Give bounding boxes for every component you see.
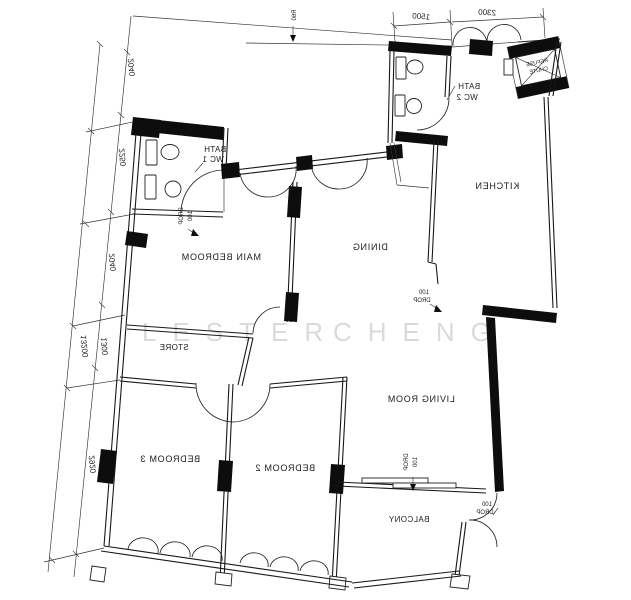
dim-left-seg1: 2040 — [126, 58, 137, 77]
floor-plan-page: LESTER CHENG 2040 2250 2040 1300 2920 13… — [0, 0, 631, 600]
top-dimension-lines: 1500 2300 — [391, 8, 546, 45]
bath2-label-line2: WC 2 — [456, 93, 478, 102]
dim-top-2300: 2300 — [477, 8, 496, 18]
room-label-bedroom3: BEDROOM 3 — [140, 454, 200, 464]
bathroom-1: BATH WC 1 DROP 100 — [132, 120, 228, 236]
bidet-base-1 — [145, 175, 156, 199]
room-label-bedroom2: BEDROOM 2 — [255, 463, 315, 473]
watermark-last-name: CHENG — [333, 317, 507, 347]
watermark: LESTER CHENG — [142, 317, 507, 347]
drop-word: DROP — [413, 298, 430, 304]
sliding-door-panel-1 — [362, 478, 428, 483]
radius-note: R60 — [133, 9, 452, 46]
drop-value: 100 — [481, 502, 492, 508]
bidet-bowl-1 — [165, 181, 181, 197]
bath1-label-line2: WC 1 — [202, 155, 224, 164]
bidet-base-2 — [395, 95, 405, 116]
room-label-main-bedroom: MAIN BEDROOM — [181, 252, 261, 262]
dim-left-seg4: 1300 — [99, 337, 110, 356]
drop-note-kitchen: 100 DROP — [413, 290, 442, 312]
toilet-cistern-2 — [396, 57, 406, 79]
left-dimension-lines: 2040 2250 2040 1300 2920 13200 — [44, 16, 142, 577]
bath1-door-arc — [181, 170, 224, 213]
bidet-bowl-2 — [407, 99, 422, 114]
dim-left-seg5: 2920 — [87, 455, 98, 474]
toilet-cistern-1 — [146, 140, 157, 165]
bath2-label-line1: BATH — [458, 82, 480, 91]
top-wall-windows — [221, 144, 403, 197]
room-label-store: STORE — [159, 343, 188, 352]
bath2-door-arc — [417, 98, 449, 130]
drop-value: 100 — [413, 457, 419, 468]
dim-left-seg2: 2250 — [117, 148, 128, 167]
room-labels: MAIN BEDROOM DINING LIVING ROOM BEDROOM … — [140, 242, 455, 473]
floor-plan-drawing: LESTER CHENG 2040 2250 2040 1300 2920 13… — [0, 0, 631, 600]
bath1-label-line1: BATH — [204, 145, 226, 154]
entry-sink — [504, 59, 513, 75]
drop-value: 100 — [418, 290, 429, 296]
room-label-living-room: LIVING ROOM — [387, 394, 455, 404]
balcony-walls: DROP 100 100 DROP BALCONY — [337, 453, 498, 589]
refuse-chute: REFUSE CHUTE — [507, 36, 569, 99]
toilet-bowl-1 — [161, 145, 179, 160]
radius-note-text: R60 — [292, 9, 298, 21]
bedroom-walls — [196, 377, 347, 590]
drop-value: 100 — [188, 211, 194, 222]
bedroom3-window-arcs — [128, 538, 222, 561]
drop-word: DROP — [404, 453, 410, 470]
room-label-kitchen: KITCHEN — [475, 181, 519, 191]
drop-word: DROP — [476, 510, 493, 516]
sliding-door-panel-2 — [393, 483, 456, 488]
room-label-dining: DINING — [352, 242, 388, 252]
dim-left-seg3: 2040 — [107, 253, 118, 272]
dim-left-total: 13200 — [79, 335, 90, 359]
room-label-balcony: BALCONY — [388, 515, 429, 524]
drop-word: DROP — [179, 207, 185, 224]
dim-top-1500: 1500 — [411, 11, 430, 21]
bathroom-2: BATH WC 2 — [388, 41, 480, 188]
toilet-bowl-2 — [407, 60, 423, 74]
